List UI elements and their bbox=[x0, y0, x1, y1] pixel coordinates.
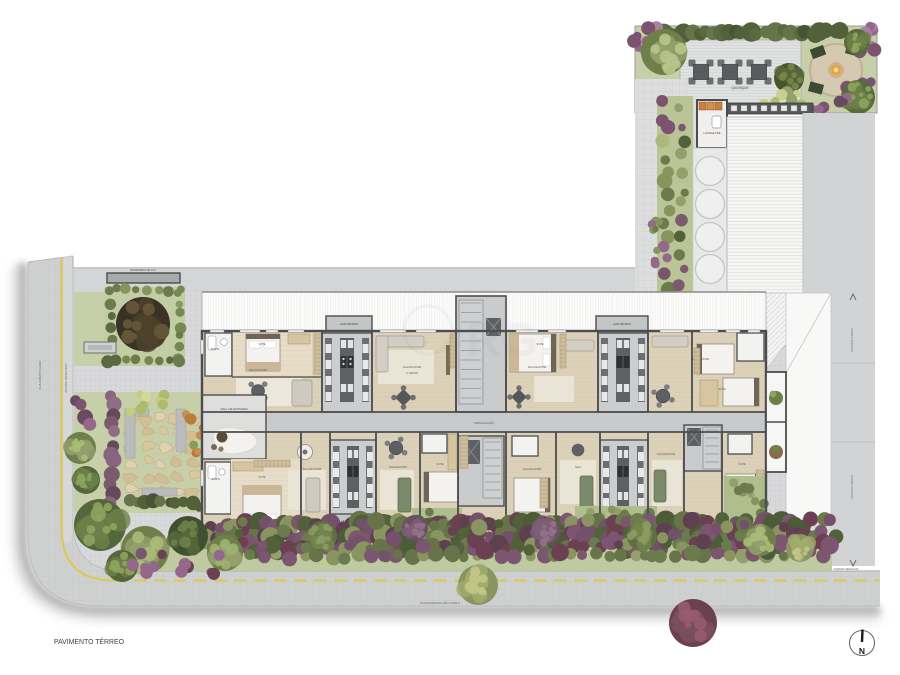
svg-text:RG: RG bbox=[466, 314, 538, 367]
svg-text:ACESSO PEDESTRES: ACESSO PEDESTRES bbox=[64, 363, 68, 393]
svg-text:QUIOSQUE: QUIOSQUE bbox=[731, 86, 748, 90]
svg-text:SUITE: SUITE bbox=[258, 476, 265, 479]
svg-text:RAMPA ACESSO: RAMPA ACESSO bbox=[850, 475, 854, 499]
svg-text:LOUNGE PRE: LOUNGE PRE bbox=[703, 131, 720, 135]
svg-text:BANHO: BANHO bbox=[212, 478, 221, 481]
svg-text:ACESSO VEÍCULOS: ACESSO VEÍCULOS bbox=[834, 567, 859, 571]
svg-text:SALA: SALA bbox=[575, 466, 582, 469]
svg-text:SALA DE ESTAR: SALA DE ESTAR bbox=[523, 468, 542, 471]
svg-text:SUITE: SUITE bbox=[738, 463, 745, 466]
svg-text:SALA DE ESTAR: SALA DE ESTAR bbox=[389, 466, 408, 469]
svg-text:RAMPA ACESSO: RAMPA ACESSO bbox=[850, 328, 854, 352]
svg-text:BANHO: BANHO bbox=[211, 348, 220, 351]
svg-text:PAVIMENTO TÉRREO: PAVIMENTO TÉRREO bbox=[54, 637, 125, 646]
svg-text:N: N bbox=[859, 646, 865, 656]
svg-text:SALA DE ESTAR: SALA DE ESTAR bbox=[657, 453, 676, 456]
svg-text:HALL DE ENTRADA: HALL DE ENTRADA bbox=[220, 407, 248, 411]
svg-text:E JANTAR: E JANTAR bbox=[406, 372, 418, 375]
svg-text:SUITE: SUITE bbox=[436, 463, 443, 466]
svg-text:SUITE: SUITE bbox=[258, 343, 265, 346]
svg-text:SALA DE ESTAR: SALA DE ESTAR bbox=[249, 369, 268, 372]
svg-text:SALA DE ESTAR: SALA DE ESTAR bbox=[303, 468, 322, 471]
svg-text:MEDIDORES DE LUZ: MEDIDORES DE LUZ bbox=[130, 268, 156, 272]
svg-text:CIRCULAÇÃO: CIRCULAÇÃO bbox=[474, 420, 494, 425]
svg-text:RUA ALBERTO GUIZO: RUA ALBERTO GUIZO bbox=[38, 360, 42, 390]
svg-text:SALA DE ESTAR: SALA DE ESTAR bbox=[403, 366, 422, 369]
svg-text:SUITE: SUITE bbox=[718, 388, 725, 391]
svg-text:RUA APARECIDA SÃO CAMILO: RUA APARECIDA SÃO CAMILO bbox=[420, 600, 461, 605]
